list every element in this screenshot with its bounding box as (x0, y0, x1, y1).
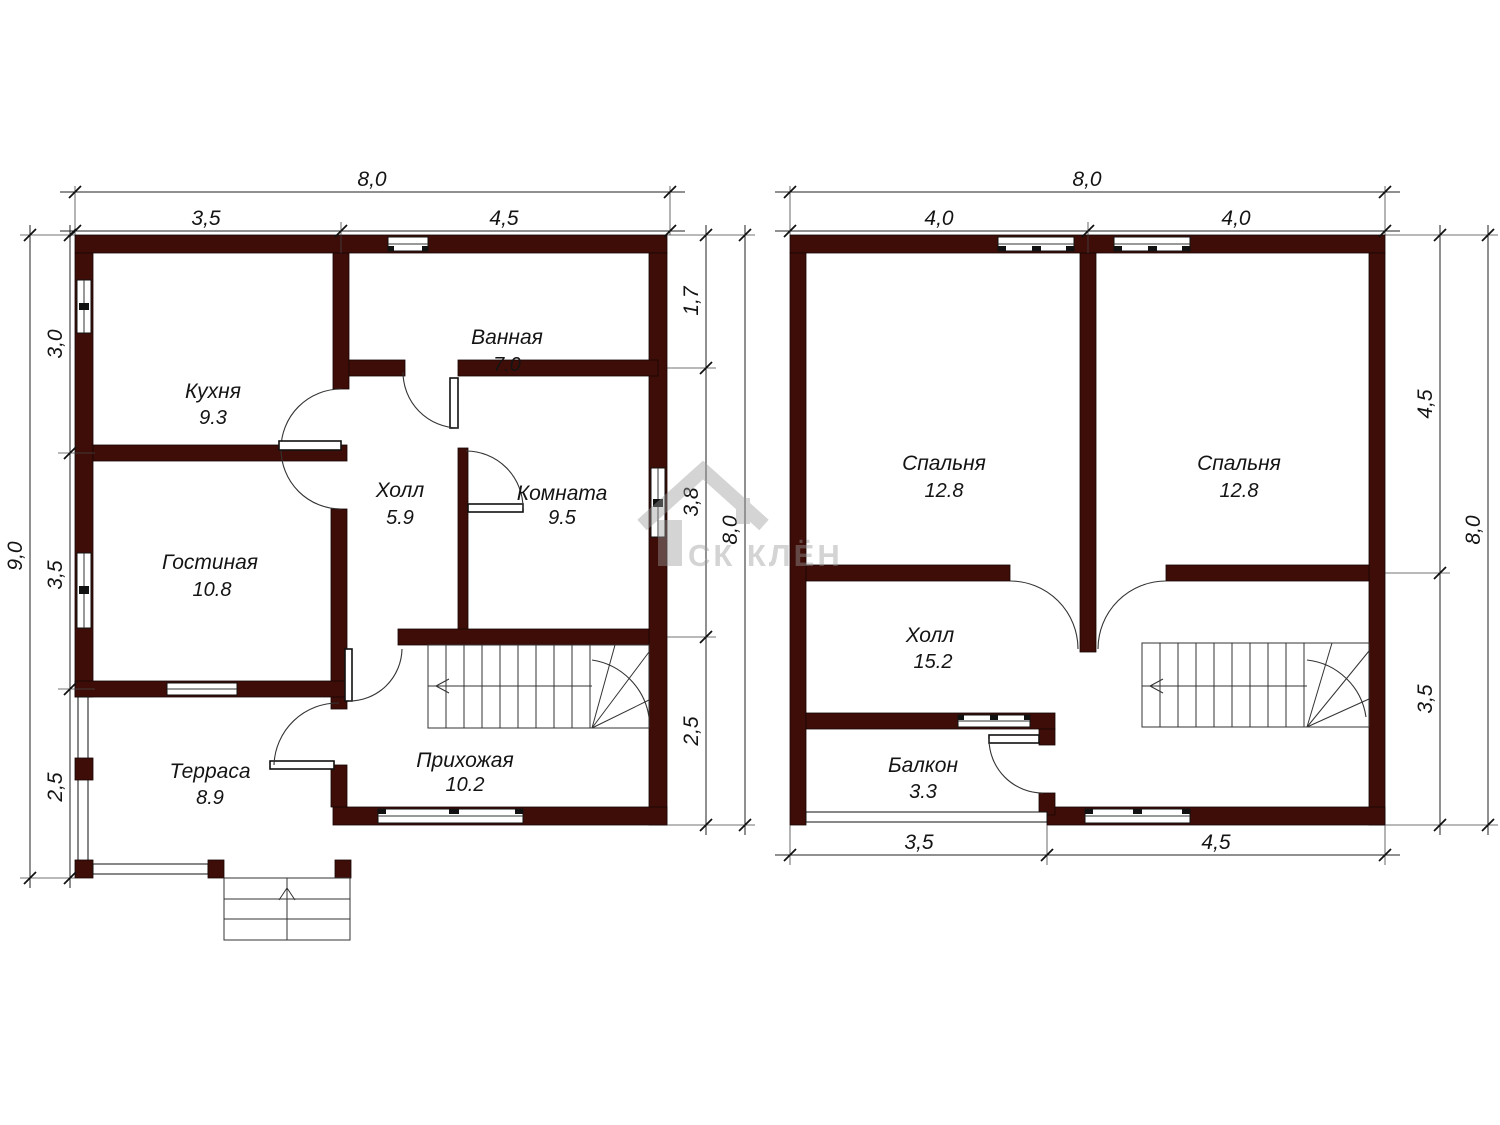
room-area-kitchen: 9.3 (199, 407, 227, 429)
floor2-walls (790, 235, 1385, 825)
room-label-room: Комната (517, 482, 608, 505)
bedroom2-door (1098, 581, 1166, 649)
dim-f1-left-total: 9,0 (4, 541, 27, 571)
room-label-terrace: Терраса (169, 760, 250, 783)
dim-f1-left-1: 3,5 (44, 560, 67, 590)
floor1-windows (77, 237, 665, 823)
stairs-direction-arrow (436, 679, 592, 693)
watermark: СК КЛЁН (642, 470, 843, 573)
hall2-window (1085, 809, 1190, 823)
floor1-staircase (428, 645, 649, 728)
room-area-hall1: 5.9 (386, 507, 414, 529)
floor1-plan: Кухня 9.3 Ванная 7.0 Холл 5.9 Комната 9.… (4, 168, 755, 940)
dim-f1-top-0: 3,5 (191, 207, 221, 230)
room-label-bedroom1: Спальня (902, 452, 986, 475)
bedroom1-door (1010, 581, 1078, 649)
dim-f2-right-0: 4,5 (1414, 389, 1437, 419)
kitchen-window (77, 280, 91, 333)
room-area-hall2: 15.2 (914, 651, 953, 673)
dim-f2-top-0: 4,0 (924, 207, 954, 230)
room-label-hallway: Прихожая (416, 749, 513, 772)
room-area-hallway: 10.2 (446, 774, 485, 796)
floor2-dims-bottom: 3,5 4,5 (775, 825, 1400, 865)
floor2-doors (989, 581, 1166, 793)
kitchen-living-door (279, 389, 341, 509)
balcony-door (989, 735, 1043, 793)
floor2-plan: Спальня 12.8 Спальня 12.8 Холл 15.2 Балк… (775, 168, 1498, 865)
dim-f1-left-2: 2,5 (44, 772, 67, 803)
dim-f2-top-1: 4,0 (1221, 207, 1251, 230)
room-area-bedroom2: 12.8 (1220, 480, 1259, 502)
dim-f2-right-total: 8,0 (1462, 515, 1485, 545)
balcony-window (958, 715, 1030, 727)
room-label-hall2: Холл (905, 624, 955, 647)
watermark-brand: СК КЛЁН (688, 538, 843, 573)
dim-f1-top-total: 8,0 (357, 168, 387, 191)
dim-f2-right-1: 3,5 (1414, 684, 1437, 714)
bathroom-window (388, 237, 428, 251)
entry-arrow (279, 888, 295, 934)
bedroom2-window (1114, 237, 1190, 251)
room-area-bathroom: 7.0 (493, 354, 521, 376)
terrace-entry-door (270, 703, 339, 769)
room-label-bathroom: Ванная (471, 326, 543, 349)
stairs2-direction-arrow (1150, 679, 1307, 693)
dim-f1-right-0: 1,7 (680, 285, 703, 316)
floor1-doors (270, 372, 523, 769)
floor-plan-page: Кухня 9.3 Ванная 7.0 Холл 5.9 Комната 9.… (0, 0, 1500, 1125)
hallway-door (345, 649, 402, 701)
floor2-dims-right: 4,5 3,5 8,0 (1385, 225, 1498, 835)
floor2-staircase (1142, 643, 1369, 727)
room-area-room: 9.5 (548, 507, 577, 529)
room-label-bedroom2: Спальня (1197, 452, 1281, 475)
living-window (77, 553, 91, 628)
room-area-balcony: 3.3 (909, 781, 937, 803)
dim-f2-bottom-1: 4,5 (1201, 831, 1231, 854)
dim-f1-right-2: 2,5 (680, 716, 703, 747)
room-area-living: 10.8 (193, 579, 232, 601)
dim-f1-top-1: 4,5 (489, 207, 519, 230)
balcony-railing (806, 812, 1047, 822)
room-door (466, 451, 523, 512)
bathroom-door (403, 372, 458, 428)
floor-plan-drawing: Кухня 9.3 Ванная 7.0 Холл 5.9 Комната 9.… (0, 0, 1500, 1125)
terrace-wall-window (167, 683, 237, 695)
floor1-room-labels: Кухня 9.3 Ванная 7.0 Холл 5.9 Комната 9.… (162, 326, 607, 809)
hallway-window (378, 809, 523, 823)
room-label-hall1: Холл (375, 479, 425, 502)
room-area-terrace: 8.9 (196, 787, 224, 809)
floor1-walls (75, 235, 667, 825)
bedroom1-window (998, 237, 1074, 251)
room-label-balcony: Балкон (888, 754, 959, 777)
dim-f2-top-total: 8,0 (1072, 168, 1102, 191)
dim-f1-left-0: 3,0 (44, 329, 67, 359)
entrance-steps (224, 878, 350, 940)
room-label-kitchen: Кухня (185, 380, 241, 403)
room-label-living: Гостиная (162, 551, 258, 574)
room-area-bedroom1: 12.8 (925, 480, 964, 502)
dim-f2-bottom-0: 3,5 (904, 831, 934, 854)
